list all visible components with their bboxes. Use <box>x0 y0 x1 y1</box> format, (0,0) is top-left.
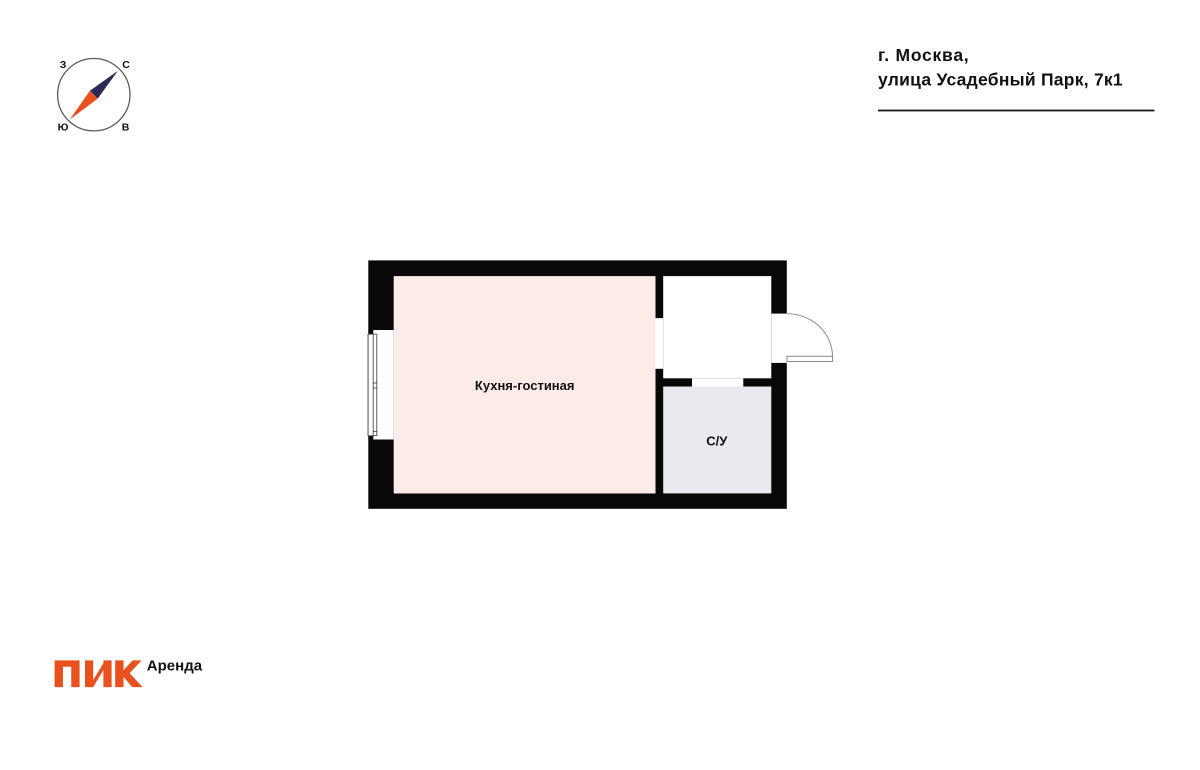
svg-text:Аренда: Аренда <box>147 657 203 674</box>
svg-text:В: В <box>122 122 130 134</box>
svg-text:С/У: С/У <box>706 433 728 448</box>
svg-text:С: С <box>122 59 130 71</box>
svg-text:улица Усадебный Парк, 7к1: улица Усадебный Парк, 7к1 <box>878 70 1123 90</box>
svg-text:Кухня-гостиная: Кухня-гостиная <box>475 378 575 393</box>
svg-text:г. Москва,: г. Москва, <box>878 45 969 65</box>
svg-text:Ю: Ю <box>58 122 69 134</box>
svg-text:З: З <box>60 59 67 71</box>
